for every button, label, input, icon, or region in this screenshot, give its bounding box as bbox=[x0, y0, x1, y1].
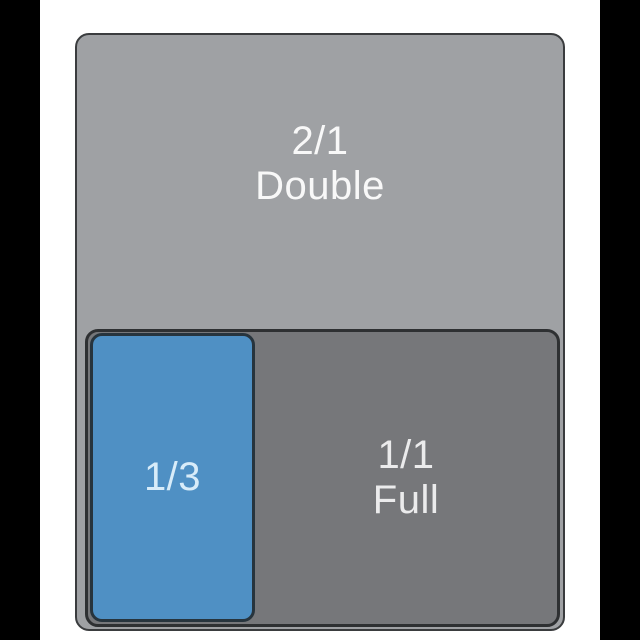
pan-1-3-label: 1/3 bbox=[144, 455, 201, 500]
pan-2-1-name-text: Double bbox=[77, 164, 563, 209]
pan-2-1-size-text: 2/1 bbox=[77, 119, 563, 164]
pan-2-1-double: 2/1 Double 1/1 Full 1/3 bbox=[75, 33, 565, 631]
right-black-bar bbox=[600, 0, 640, 640]
pan-1-1-name-text: Full bbox=[255, 478, 557, 523]
pan-size-diagram: 2/1 Double 1/1 Full 1/3 bbox=[0, 0, 640, 640]
pan-1-1-label: 1/1 Full bbox=[255, 433, 557, 523]
pan-2-1-label: 2/1 Double bbox=[77, 119, 563, 209]
pan-1-1-size-text: 1/1 bbox=[255, 433, 557, 478]
pan-1-3-third: 1/3 bbox=[90, 333, 255, 622]
left-black-bar bbox=[0, 0, 40, 640]
pan-1-1-full: 1/1 Full 1/3 bbox=[85, 329, 560, 627]
